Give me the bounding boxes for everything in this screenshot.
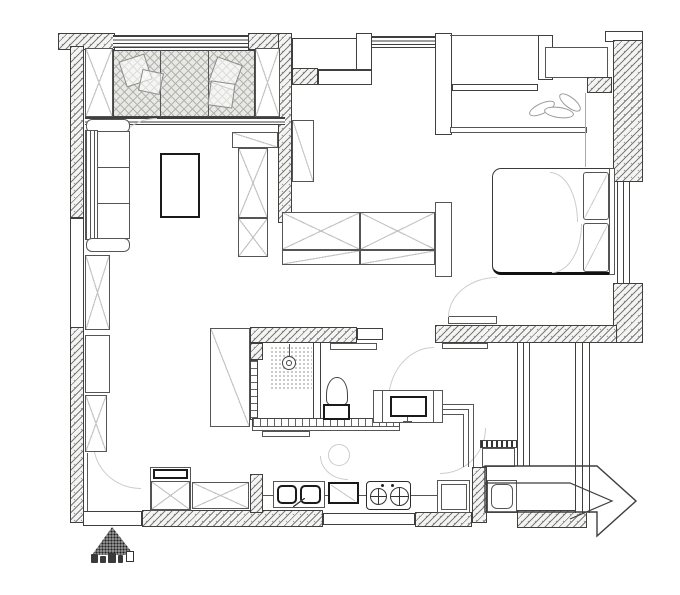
sink-faucet [293, 498, 305, 507]
hall-window [372, 36, 437, 48]
vanity-shelf [330, 343, 377, 350]
pillow-2 [583, 223, 609, 272]
balcony-window-top [113, 35, 252, 48]
right-wall-upper [613, 40, 643, 182]
vanity-panel-right [433, 390, 443, 423]
watermark-glyph-3 [108, 553, 116, 563]
wardrobe-end-panel [435, 202, 452, 277]
entry-arrow [478, 448, 648, 540]
person-sketch-arc [320, 456, 348, 480]
tv-console-top [232, 132, 278, 148]
burner-1 [370, 488, 387, 505]
pier-b [435, 33, 452, 135]
bottom-wall-window [323, 513, 415, 525]
watermark-glyph-4 [118, 555, 123, 563]
bathroom-door-header [357, 328, 383, 340]
right-wall-lower [613, 283, 643, 343]
wardrobe-lower-right [360, 250, 435, 265]
bathroom-wall-corner [250, 343, 263, 360]
toilet-tank [323, 404, 350, 420]
counter-right-inner [441, 484, 467, 510]
bathroom-top-wall [250, 327, 357, 343]
sofa-cushion-1 [97, 131, 130, 168]
bottom-wall-b [415, 512, 472, 527]
watermark-glyph-box [126, 551, 134, 562]
bay-window [452, 84, 538, 91]
hall-shaft [292, 120, 314, 182]
side-cabinet-3 [85, 395, 107, 452]
shower-head [282, 356, 296, 370]
wardrobe-lower-left [282, 250, 360, 265]
bathroom-door-panel [210, 328, 250, 427]
wall-seg-ne [587, 77, 612, 93]
left-wall-lower [70, 327, 84, 523]
bathroom-partition [313, 342, 321, 425]
pier-a [356, 33, 372, 70]
bedroom-door-leaf [448, 316, 497, 324]
tv-cabinet-lower [238, 218, 268, 257]
stove-dot-1 [381, 484, 384, 487]
vanity-panel-left [373, 390, 383, 423]
bedroom-cabinet-side-line [585, 93, 586, 167]
bottom-wall-left-gap [83, 511, 142, 526]
bedroom-bottom-wall [435, 325, 617, 343]
corner-line-h3 [443, 414, 463, 415]
entry-shelf [442, 343, 488, 349]
bedroom-cabinet-top [450, 127, 587, 133]
side-cabinet-2 [85, 335, 110, 393]
flue-step [318, 70, 372, 85]
corner-line-v1 [473, 404, 474, 467]
balcony-cabinet-left [85, 48, 113, 117]
wardrobe-left [282, 212, 360, 250]
side-cabinet-line [87, 453, 88, 511]
corner-line-v2 [468, 409, 469, 467]
sofa-cushion-3 [97, 203, 130, 239]
pillow-1 [583, 172, 609, 220]
oven-detail [331, 485, 355, 501]
deck-divider-2 [208, 50, 209, 117]
tv-cabinet-upper [238, 148, 268, 218]
bottom-wall-a [142, 510, 323, 527]
toilet-bowl [326, 377, 348, 406]
shoe-rack-stripes [480, 440, 518, 448]
sofa-cushion-2 [97, 167, 130, 204]
wardrobe-right [360, 212, 435, 250]
faucet-bar [403, 421, 412, 422]
coffee-table [160, 153, 200, 218]
balcony-cabinet-right [255, 48, 280, 117]
flue-wall [292, 68, 318, 85]
watermark-glyph-2 [100, 556, 106, 563]
ac-platform [545, 47, 608, 78]
corner-line-h2 [443, 409, 468, 410]
burner-2 [390, 487, 409, 506]
sofa-arm-bottom [86, 238, 130, 252]
floor-plan [0, 0, 680, 595]
vanity-basin [390, 396, 427, 417]
kitchen-shelf [262, 431, 310, 437]
bedroom-side-window [617, 182, 630, 283]
left-wall-window [70, 218, 84, 328]
bathroom-left-wall-tiles [250, 360, 258, 420]
divider-wall [278, 33, 292, 223]
stove-dot-2 [391, 484, 394, 487]
counter-cabinet-left [192, 482, 249, 509]
kitchen-pillar [250, 474, 263, 513]
fridge-top [153, 469, 188, 479]
headboard [609, 168, 615, 275]
fridge-body [151, 481, 190, 510]
bedroom-door-arc [448, 277, 497, 317]
lounge-cushion-2 [207, 80, 235, 108]
lounge-cushion-1 [138, 69, 164, 95]
bay-top-line [450, 35, 538, 36]
corner-line-v3 [463, 414, 464, 467]
watermark-glyph-1 [91, 554, 98, 563]
corner-line-h1 [443, 404, 473, 405]
side-cabinet-1 [85, 255, 110, 330]
left-wall-upper [70, 46, 84, 218]
